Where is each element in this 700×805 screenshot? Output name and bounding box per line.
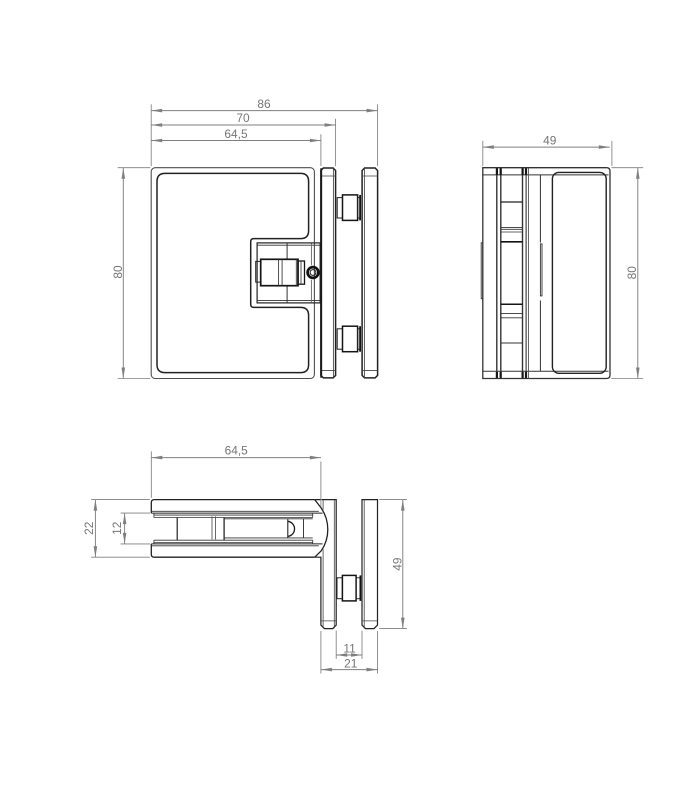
svg-text:49: 49 — [390, 557, 404, 571]
svg-text:80: 80 — [111, 265, 125, 279]
svg-text:11: 11 — [343, 642, 356, 656]
svg-text:22: 22 — [82, 521, 96, 535]
svg-text:64,5: 64,5 — [225, 444, 249, 458]
svg-text:86: 86 — [257, 97, 271, 111]
svg-text:49: 49 — [543, 133, 557, 147]
svg-text:80: 80 — [625, 266, 639, 280]
svg-text:21: 21 — [344, 656, 358, 670]
svg-text:12: 12 — [110, 521, 124, 535]
svg-text:70: 70 — [236, 111, 250, 125]
svg-text:64,5: 64,5 — [224, 127, 248, 141]
